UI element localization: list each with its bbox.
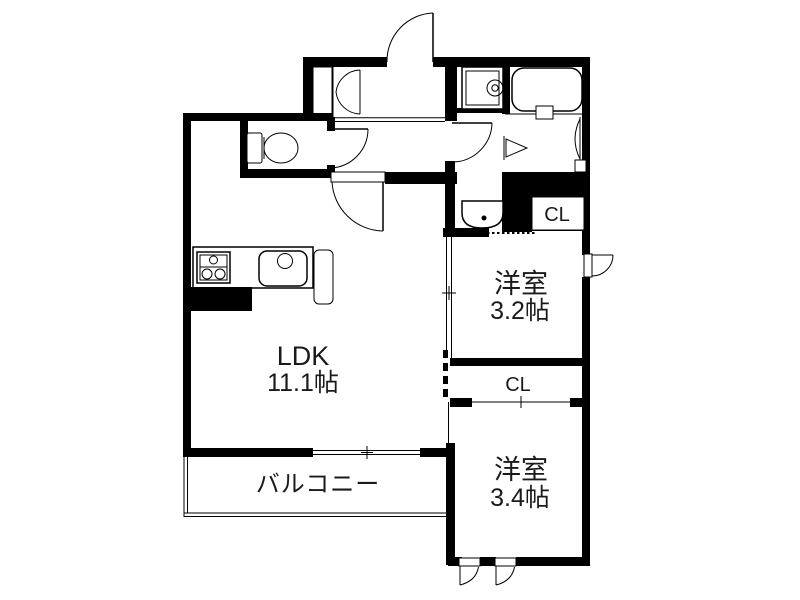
refrigerator-space xyxy=(314,250,333,304)
window-bedroom1 xyxy=(584,254,613,277)
washroom-door-arc xyxy=(452,123,492,162)
washing-machine-pan xyxy=(462,67,503,109)
washbasin-fixture xyxy=(462,201,503,228)
floor-plan-image: LDK 11.1帖 洋室 3.2帖 CL CL 洋室 3.4帖 バルコニー xyxy=(0,0,800,600)
entry-door-arc xyxy=(387,13,433,62)
ldk-door-arc xyxy=(331,172,385,231)
closet2-label: CL xyxy=(505,374,531,396)
closet1-label: CL xyxy=(544,204,570,226)
partition-ldk-closet2-dashed xyxy=(446,350,449,445)
closet2-door-line xyxy=(472,396,570,408)
bedroom2-size-label: 3.4帖 xyxy=(490,484,550,512)
bedroom2-label: 洋室 xyxy=(494,455,548,485)
floor-plan-drawing: LDK 11.1帖 洋室 3.2帖 CL CL 洋室 3.4帖 バルコニー xyxy=(0,0,800,600)
balcony-label: バルコニー xyxy=(256,471,381,498)
partition-ldk-bedroom1 xyxy=(442,237,456,358)
ldk-size-label: 11.1帖 xyxy=(267,369,339,397)
toilet-door-arc xyxy=(330,129,368,168)
stove-burners xyxy=(197,252,230,283)
sliding-window-balcony xyxy=(313,446,420,459)
genkan-step-line xyxy=(330,118,445,122)
bedroom1-label: 洋室 xyxy=(494,269,548,299)
bath-folding-door xyxy=(504,136,527,160)
toilet-fixture xyxy=(247,133,298,163)
kitchen-sink xyxy=(259,251,307,286)
bedroom1-size-label: 3.2帖 xyxy=(490,297,550,325)
entry-closet-double-door xyxy=(313,67,360,117)
bathtub-fixture xyxy=(505,68,582,119)
ldk-label: LDK xyxy=(277,341,330,371)
